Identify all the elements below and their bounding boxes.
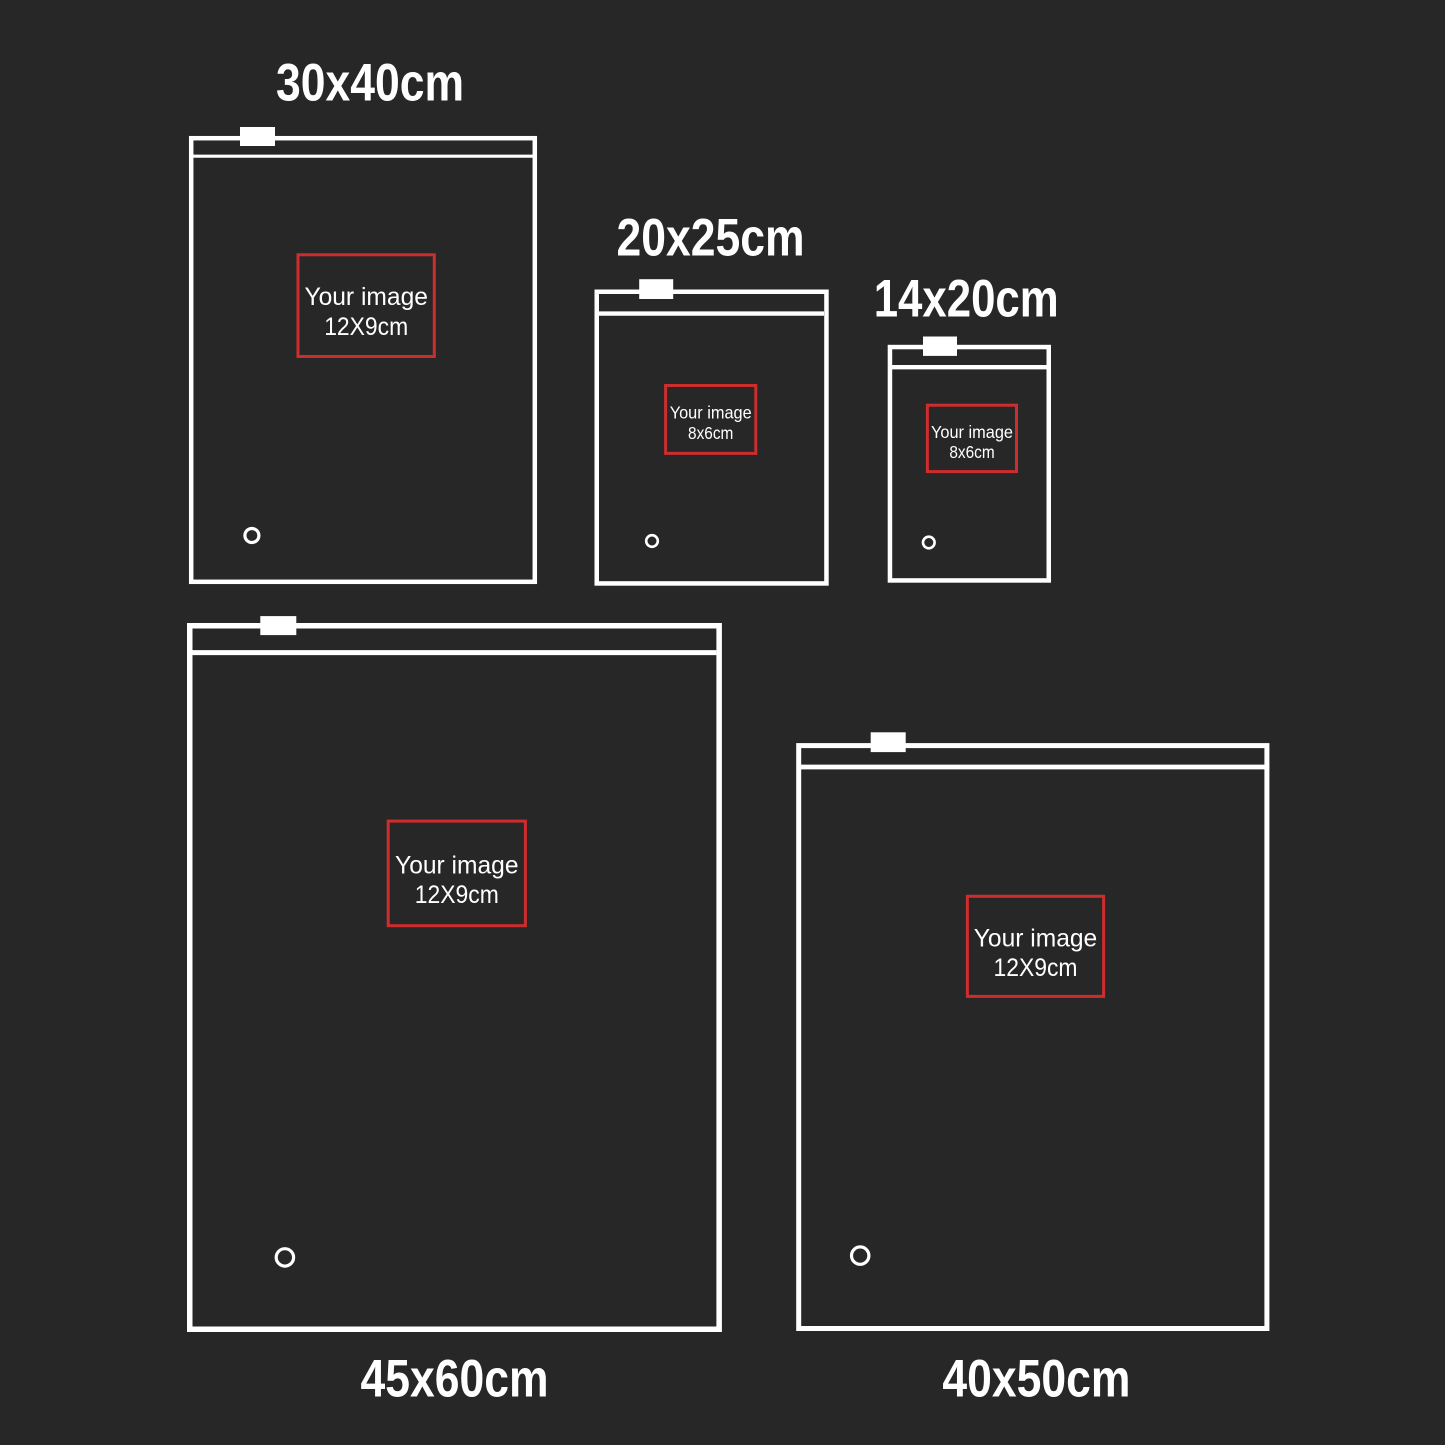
svg-text:Your image: Your image [931, 422, 1013, 442]
svg-text:30x40cm: 30x40cm [276, 54, 464, 113]
svg-text:20x25cm: 20x25cm [617, 208, 805, 267]
svg-text:45x60cm: 45x60cm [361, 1350, 549, 1409]
svg-text:12X9cm: 12X9cm [324, 313, 408, 341]
svg-text:Your image: Your image [974, 925, 1098, 953]
svg-text:14x20cm: 14x20cm [874, 270, 1059, 329]
svg-text:40x50cm: 40x50cm [942, 1350, 1130, 1409]
svg-text:12X9cm: 12X9cm [415, 881, 499, 909]
svg-text:8x6cm: 8x6cm [949, 442, 994, 462]
svg-text:Your image: Your image [670, 403, 752, 423]
svg-text:8x6cm: 8x6cm [688, 423, 733, 443]
svg-text:12X9cm: 12X9cm [994, 954, 1078, 982]
svg-text:Your image: Your image [395, 852, 519, 880]
svg-text:Your image: Your image [304, 283, 428, 311]
